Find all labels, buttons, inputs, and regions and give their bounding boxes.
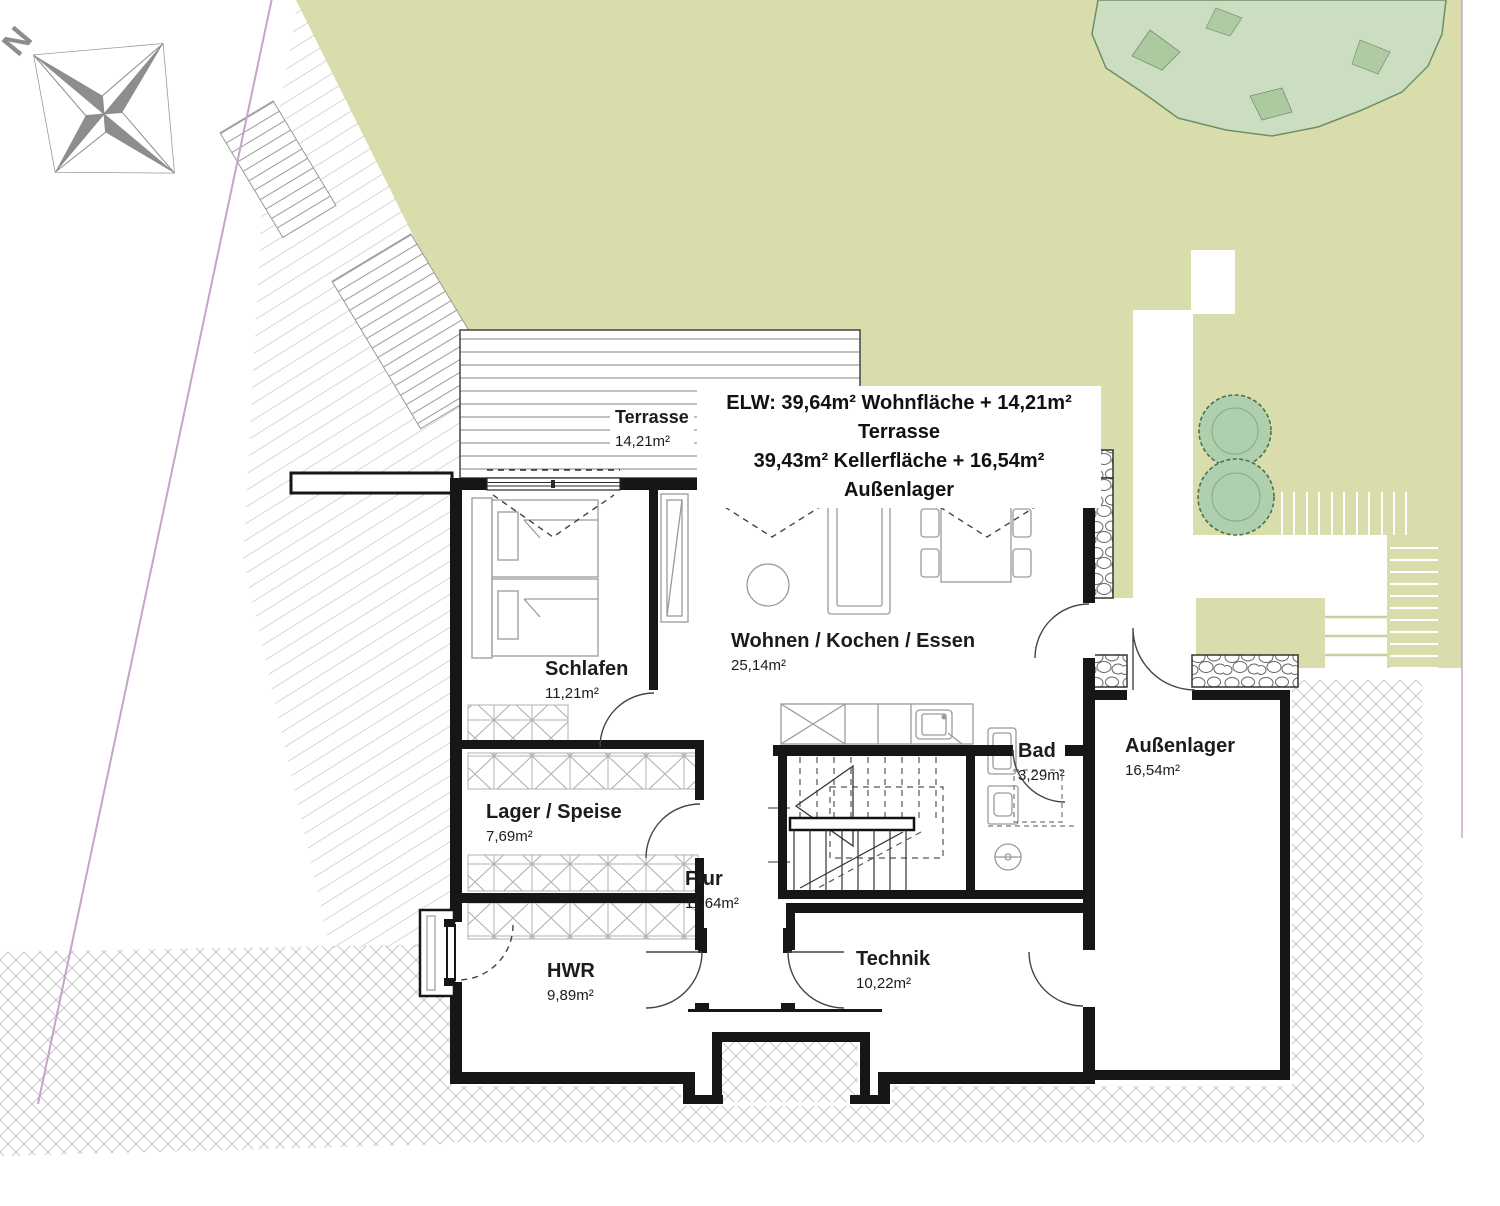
entrance-niche-hatch: [719, 1042, 858, 1102]
wardrobe: [468, 705, 568, 743]
room-label-technik: Technik 10,22m²: [856, 948, 930, 992]
floor-plan: N ELW: 39,64m² Wohnfläche + 14,21m² Terr…: [0, 0, 1500, 1206]
room-label-hwr: HWR 9,89m²: [547, 960, 595, 1004]
kitchen-counter: [781, 704, 973, 744]
shelf: [661, 494, 688, 622]
room-area: 11,21m²: [545, 685, 628, 702]
door-arc-aussenlager: [1133, 628, 1195, 690]
room-label-wohnen: Wohnen / Kochen / Essen 25,14m²: [731, 630, 975, 674]
room-area: 10,22m²: [856, 975, 930, 992]
room-area: 7,69m²: [486, 828, 622, 845]
room-name: HWR: [547, 960, 595, 982]
room-name: Flur: [685, 868, 739, 890]
room-name: Bad: [1018, 740, 1065, 762]
site-plan-graphic: N: [0, 0, 1500, 1206]
compass-rose: N: [0, 0, 234, 231]
room-name: Lager / Speise: [486, 801, 622, 823]
room-name: Terrasse: [615, 408, 689, 428]
storage-shelf: [468, 855, 698, 891]
room-area: 9,89m²: [547, 987, 595, 1004]
room-label-aussenlager: Außenlager 16,54m²: [1125, 735, 1235, 779]
room-name: Technik: [856, 948, 930, 970]
room-name: Außenlager: [1125, 735, 1235, 757]
retaining-wall: [291, 473, 452, 493]
room-label-lager: Lager / Speise 7,69m²: [486, 801, 622, 845]
plan-title: ELW: 39,64m² Wohnfläche + 14,21m² Terras…: [697, 386, 1101, 508]
storage-shelf: [468, 903, 698, 939]
round-table: [747, 564, 789, 606]
room-area: 11,64m²: [685, 895, 739, 912]
room-area: 14,21m²: [615, 433, 689, 450]
room-name: Schlafen: [545, 658, 628, 680]
plan-title-line1: ELW: 39,64m² Wohnfläche + 14,21m² Terras…: [699, 389, 1099, 447]
sofa: [828, 498, 890, 614]
room-area: 16,54m²: [1125, 762, 1235, 779]
room-label-flur: Flur 11,64m²: [685, 868, 739, 912]
plan-title-line2: 39,43m² Kellerfläche + 16,54m² Außenlage…: [699, 447, 1099, 505]
room-label-bad: Bad 3,29m²: [1018, 740, 1065, 784]
room-name: Wohnen / Kochen / Essen: [731, 630, 975, 652]
storage-shelf: [468, 753, 698, 789]
room-label-schlafen: Schlafen 11,21m²: [545, 658, 628, 702]
stair-handrail: [790, 818, 914, 830]
room-area: 25,14m²: [731, 657, 975, 674]
room-area: 3,29m²: [1018, 767, 1065, 784]
room-label-terrasse: Terrasse 14,21m²: [610, 406, 694, 452]
exterior-door-hwr: [420, 910, 455, 996]
